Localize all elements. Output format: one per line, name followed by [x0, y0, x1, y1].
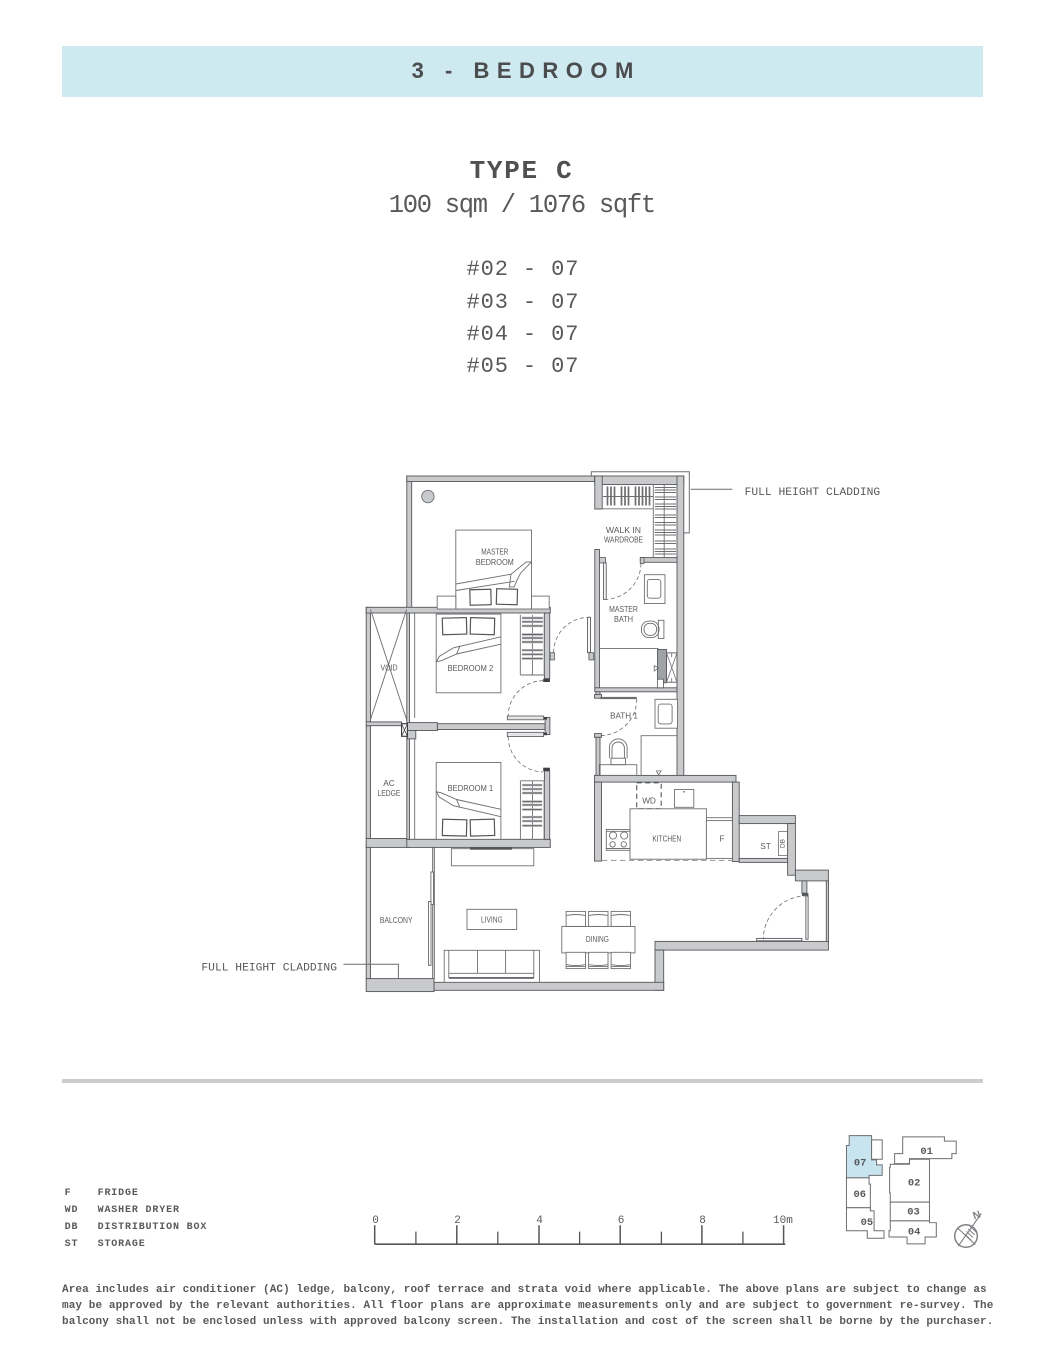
svg-text:BATH: BATH: [614, 614, 633, 624]
svg-text:FULL HEIGHT CLADDING: FULL HEIGHT CLADDING: [201, 963, 337, 975]
svg-text:KITCHEN: KITCHEN: [652, 833, 681, 843]
svg-text:LEDGE: LEDGE: [378, 788, 401, 798]
svg-text:DINING: DINING: [586, 934, 609, 944]
svg-text:6: 6: [618, 1215, 625, 1227]
svg-text:DB: DB: [780, 839, 787, 848]
svg-text:BEDROOM: BEDROOM: [476, 557, 514, 567]
svg-text:0: 0: [372, 1215, 379, 1227]
svg-text:WD: WD: [642, 795, 656, 805]
svg-text:8: 8: [699, 1215, 706, 1227]
svg-text:07: 07: [854, 1157, 867, 1169]
svg-text:10m: 10m: [773, 1215, 793, 1227]
svg-text:WARDROBE: WARDROBE: [604, 535, 643, 545]
svg-text:05: 05: [861, 1217, 874, 1229]
svg-text:FULL HEIGHT CLADDING: FULL HEIGHT CLADDING: [745, 487, 881, 499]
svg-text:01: 01: [920, 1146, 933, 1158]
svg-text:02: 02: [908, 1177, 921, 1189]
svg-text:ST: ST: [760, 841, 771, 851]
svg-text:4: 4: [536, 1215, 543, 1227]
svg-text:04: 04: [908, 1227, 921, 1239]
svg-text:03: 03: [907, 1207, 920, 1219]
svg-text:MASTER: MASTER: [609, 604, 638, 614]
svg-text:MASTER: MASTER: [481, 547, 508, 557]
svg-text:N: N: [971, 1209, 982, 1223]
svg-text:LIVING: LIVING: [481, 915, 503, 925]
svg-text:06: 06: [854, 1189, 867, 1201]
svg-text:F: F: [719, 833, 724, 843]
svg-text:AC: AC: [383, 778, 395, 788]
svg-text:BATH 1: BATH 1: [610, 710, 638, 720]
svg-text:2: 2: [454, 1215, 461, 1227]
svg-text:VOID: VOID: [381, 663, 398, 673]
svg-text:BALCONY: BALCONY: [380, 915, 413, 925]
svg-text:BEDROOM 1: BEDROOM 1: [448, 783, 494, 793]
svg-text:BEDROOM 2: BEDROOM 2: [448, 663, 494, 673]
